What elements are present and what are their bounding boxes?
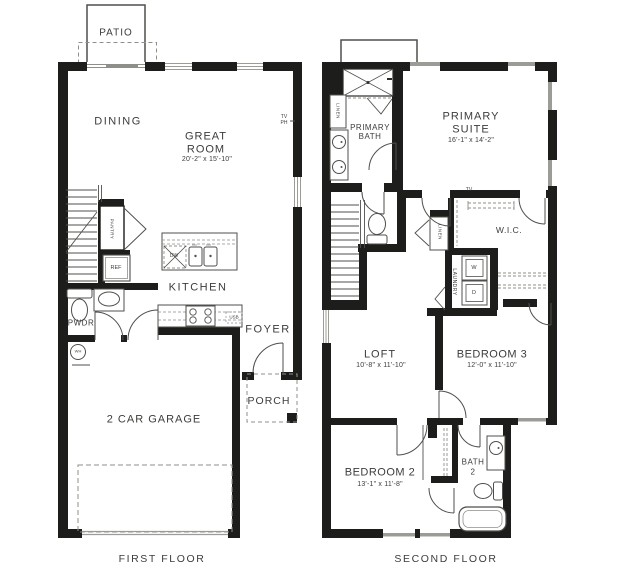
label-ref: REF bbox=[111, 265, 122, 271]
label-great-room: GREAT ROOM bbox=[177, 130, 235, 155]
label-wic: W.I.C. bbox=[496, 226, 522, 236]
garage-apron-outline bbox=[78, 465, 232, 532]
caption-first-floor: FIRST FLOOR bbox=[119, 553, 206, 565]
label-washer: W bbox=[471, 265, 476, 271]
label-porch: PORCH bbox=[248, 395, 291, 407]
label-bedroom2-dims: 13'-1" x 11'-8" bbox=[357, 481, 403, 489]
label-tv-2: TV bbox=[466, 188, 472, 194]
garage-entry-door-arc bbox=[128, 310, 158, 340]
label-great-room-dims: 20'-2" x 15'-10" bbox=[182, 156, 232, 164]
label-bedroom3-dims: 12'-0" x 11'-10" bbox=[467, 362, 517, 370]
label-linen-1: LINEN bbox=[335, 103, 340, 119]
label-foyer: FOYER bbox=[245, 324, 290, 337]
powder-sink-icon bbox=[94, 289, 124, 311]
first-floor-stairs bbox=[66, 185, 102, 281]
label-garage: 2 CAR GARAGE bbox=[107, 414, 202, 427]
floor-plan-image: PATIO DINING GREAT ROOM 20'-2" x 15'-10"… bbox=[0, 0, 617, 582]
closet-rod-wic bbox=[457, 200, 514, 246]
label-bath2: BATH bbox=[462, 457, 485, 466]
label-usb: USB bbox=[229, 314, 238, 319]
label-dw: DW bbox=[170, 254, 178, 260]
bedroom3-door-arc bbox=[439, 391, 466, 418]
front-door-arc bbox=[253, 343, 283, 373]
label-bedroom3: BEDROOM 3 bbox=[457, 349, 528, 362]
powder-toilet-icon bbox=[67, 289, 92, 321]
label-primary-suite-dims: 16'-1" x 14'-2" bbox=[448, 137, 494, 145]
wic-door-arc bbox=[519, 198, 545, 224]
pantry-closet bbox=[100, 206, 146, 250]
bath2-door-arc bbox=[458, 425, 480, 447]
label-linen-2: LINEN bbox=[437, 224, 442, 240]
label-wh: WH bbox=[75, 350, 82, 355]
first-floor-plan bbox=[58, 5, 302, 538]
bedroom2-door-arc bbox=[397, 425, 427, 455]
label-dining: DINING bbox=[94, 116, 142, 129]
toilet-door-arc bbox=[362, 192, 384, 214]
closet-rod-bedroom3 bbox=[498, 273, 548, 288]
label-loft-dims: 10'-8" x 11'-10" bbox=[356, 362, 406, 370]
roof-outline bbox=[341, 40, 417, 64]
label-patio: PATIO bbox=[99, 27, 133, 39]
powder-door-arc bbox=[95, 312, 123, 340]
garage-door bbox=[82, 532, 228, 535]
linen-closet-2 bbox=[415, 217, 448, 250]
label-ph: PH bbox=[281, 121, 288, 127]
label-kitchen: KITCHEN bbox=[169, 282, 228, 295]
label-pwdr: PWDR bbox=[68, 318, 94, 327]
kitchen-island bbox=[162, 233, 237, 270]
primary-bath-door-arc bbox=[369, 143, 396, 170]
floor-plan-drawing bbox=[0, 0, 617, 582]
label-loft: LOFT bbox=[364, 349, 396, 362]
label-dryer: D bbox=[472, 290, 476, 296]
bathtub-icon bbox=[459, 507, 506, 531]
shower-icon bbox=[343, 69, 393, 114]
laundry-door bbox=[435, 287, 445, 310]
label-bedroom2: BEDROOM 2 bbox=[345, 467, 416, 480]
bedroom2-closet-door-arc bbox=[429, 488, 454, 513]
bath2-vanity-icon bbox=[487, 436, 505, 470]
label-pantry: PANTRY bbox=[109, 219, 114, 240]
range-icon bbox=[186, 306, 215, 326]
label-primary-suite: PRIMARY SUITE bbox=[440, 110, 502, 135]
label-laundry: LAUNDRY bbox=[450, 268, 456, 295]
bath2-toilet-icon bbox=[474, 482, 503, 500]
label-primary-bath: PRIMARY BATH bbox=[344, 123, 396, 141]
caption-second-floor: SECOND FLOOR bbox=[394, 553, 497, 565]
label-bath2-number: 2 bbox=[471, 467, 476, 476]
primary-toilet-icon bbox=[367, 214, 387, 245]
water-heater-icon bbox=[71, 345, 91, 366]
